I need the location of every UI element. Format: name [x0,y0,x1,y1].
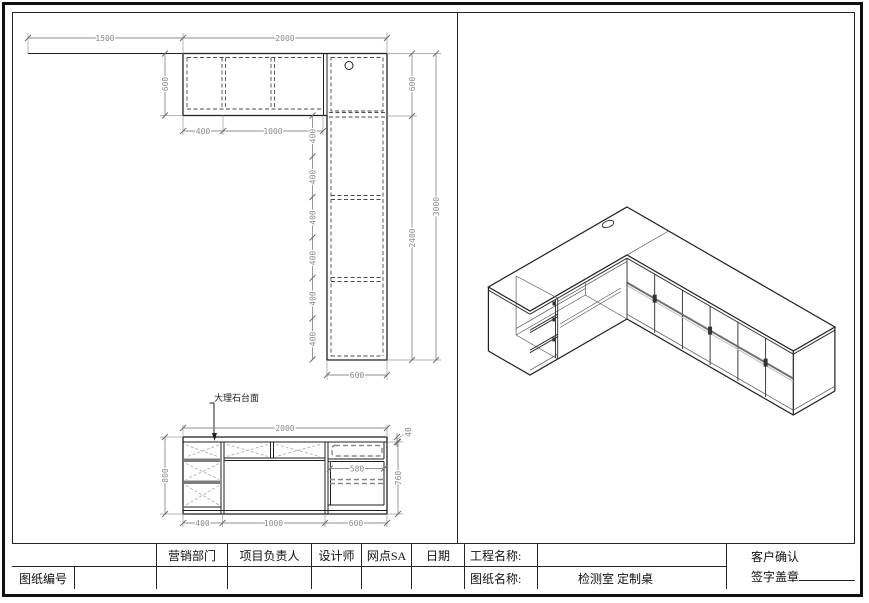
outlet-sa-label: 网点SA [362,544,412,566]
plan-dim-1500: 1500 [95,34,114,43]
plan-dim-3000: 3000 [432,197,441,216]
door-handle-3 [764,359,768,367]
project-manager-value [228,566,312,589]
elev-dim-400: 400 [195,519,210,528]
elev-dim-2000: 2000 [275,424,294,433]
marketing-dept-label: 营销部门 [157,544,228,566]
designer-label: 设计师 [312,544,362,566]
pedestal-handle-2 [553,318,556,322]
title-block: 营销部门 项目负责人 设计师 网点SA 日期 工程名称: 客户确认 签字盖章 图… [12,543,855,589]
title-block-empty-top-left [12,544,157,566]
door-handle-1 [653,295,657,303]
elev-dim-600: 600 [349,519,364,528]
grommet-hole-plan [345,62,353,70]
elev-dim-1000: 1000 [264,519,283,528]
drawing-name-value: 检测室 定制桌 [538,566,727,589]
drawing-name-label: 图纸名称: [465,566,538,589]
plan-seg-400-6: 400 [309,332,318,347]
outlet-sa-value [362,566,412,589]
callout-leader-line [210,403,215,434]
project-name-value [538,544,727,566]
isometric-view [458,12,855,543]
plan-dim-2000: 2000 [275,34,294,43]
drawing-number-value [75,566,157,589]
plan-dim-600-right: 600 [408,77,417,92]
signature-line [799,570,855,581]
signature-seal-row: 签字盖章 [751,568,855,585]
elev-dim-760: 760 [394,471,403,486]
pedestal-handle-3 [553,338,556,342]
signature-seal-label: 签字盖章 [751,570,799,584]
plan-dim-1000: 1000 [263,127,282,136]
drawer-x-marks [186,445,320,506]
marketing-dept-value [157,566,228,589]
orthographic-views: 1500 2000 600 400 1000 400 400 400 400 4… [12,12,457,543]
project-manager-label: 项目负责人 [228,544,312,566]
marble-top-callout: 大理石台面 [214,392,259,403]
iso-cabinet-doors [627,274,793,410]
plan-dim-600-bottom: 600 [350,371,365,380]
plan-hidden-lines [187,58,385,357]
plan-dim-600-left: 600 [161,77,170,92]
customer-confirm-label: 客户确认 [751,548,855,565]
drawing-number-label: 图纸编号 [12,566,75,589]
plan-seg-400-3: 400 [309,210,318,225]
designer-value [312,566,362,589]
date-label: 日期 [412,544,465,566]
plan-seg-400-1: 400 [309,129,318,144]
drawing-sheet: 1500 2000 600 400 1000 400 400 400 400 4… [0,0,869,603]
elev-dim-800: 800 [161,468,170,483]
iso-desk [488,207,835,415]
iso-interior [516,276,627,359]
plan-dim-2400: 2400 [408,228,417,247]
keyboard-tray-dashed [332,446,382,457]
pedestal-handle-1 [553,302,556,306]
pullout-shelf-dashed [330,480,384,484]
door-handle-2 [708,327,712,335]
plan-seg-400-2: 400 [309,170,318,185]
project-name-label: 工程名称: [465,544,538,566]
elev-dim-580: 580 [350,465,365,474]
elevation-view: 大理石台面 [160,392,413,528]
plan-seg-400-4: 400 [309,251,318,266]
plan-view: 1500 2000 600 400 1000 400 400 400 400 4… [25,33,441,380]
elev-dim-40: 40 [404,427,413,437]
plan-dim-400: 400 [196,127,211,136]
plan-seg-400-5: 400 [309,291,318,306]
customer-confirm-cell: 客户确认 签字盖章 [727,544,855,589]
date-value [412,566,465,589]
